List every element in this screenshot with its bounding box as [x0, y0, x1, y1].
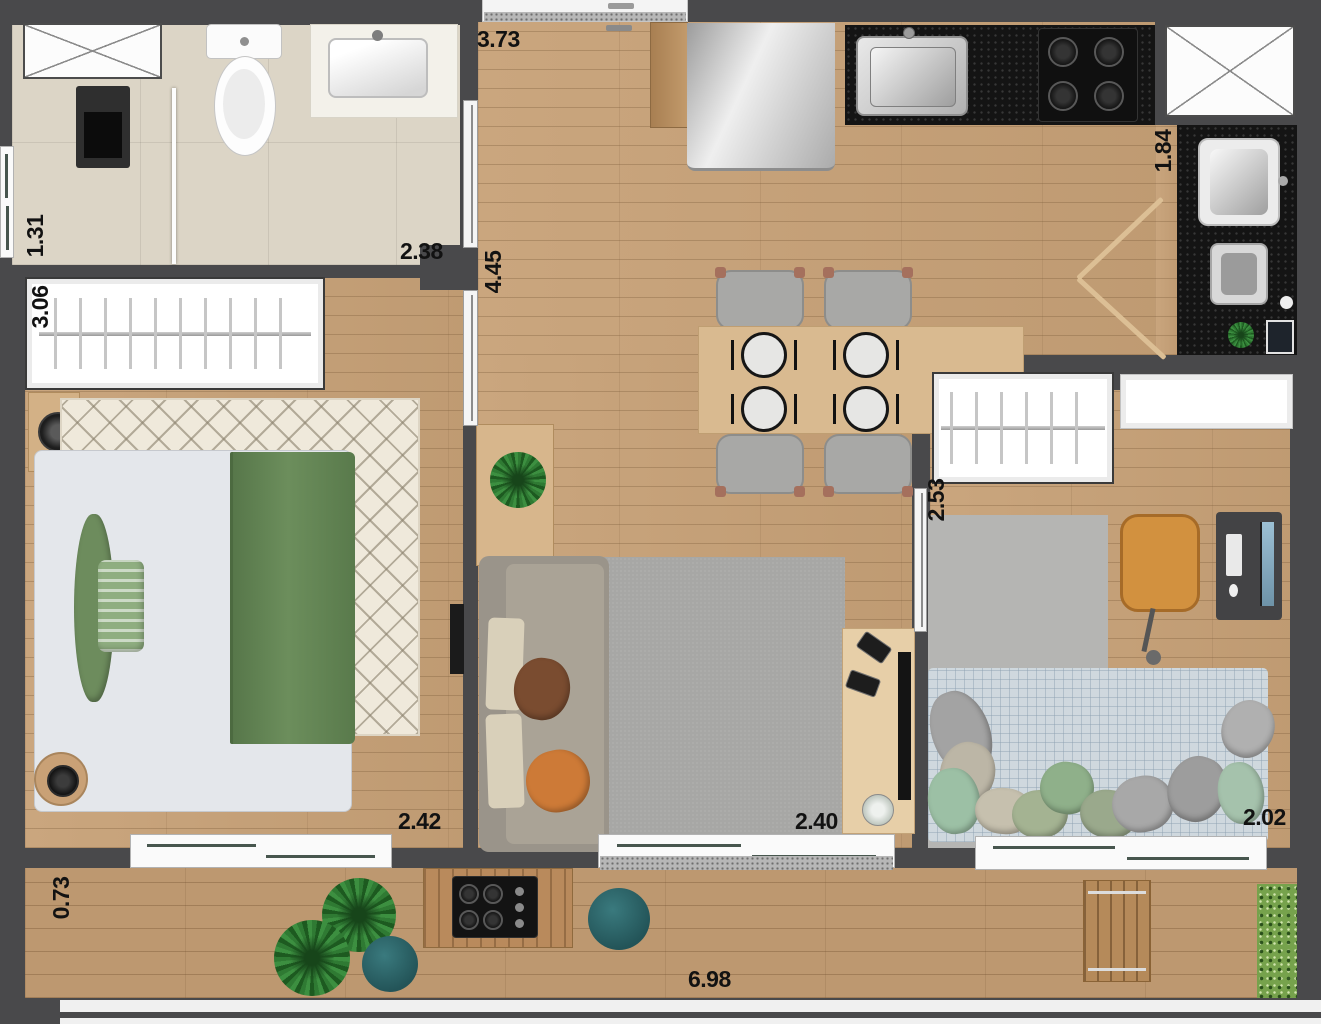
decor-tray-icon — [47, 765, 79, 797]
grill-burner-icon — [459, 884, 479, 904]
dining-chair-icon — [716, 270, 804, 330]
entry-doormat — [484, 12, 686, 21]
grill-burner-icon — [483, 910, 503, 930]
dining-chair-icon — [824, 434, 912, 494]
sink-basin — [870, 47, 956, 107]
laundry-basin — [1210, 149, 1268, 215]
dimension-label: 3.06 — [27, 281, 53, 333]
laundry-sink-icon — [1198, 138, 1280, 226]
balcony-bench — [1083, 880, 1151, 982]
bathroom-sliding-door — [463, 100, 478, 248]
balcony-railing — [60, 1018, 1321, 1024]
burner-icon — [1094, 81, 1124, 111]
entry-cabinet — [650, 22, 688, 128]
grill-knob-icon — [515, 887, 524, 896]
keyboard-icon — [1226, 534, 1242, 576]
balcony-railing — [60, 1000, 1321, 1012]
washing-bucket-icon — [1210, 243, 1268, 305]
dimension-label: 2.02 — [1243, 804, 1286, 830]
grill-knob-icon — [515, 919, 524, 928]
kitchen-faucet-icon — [903, 27, 915, 39]
door-handle-icon — [606, 25, 632, 31]
chair-wheel-icon — [1146, 650, 1161, 665]
grill-burner-icon — [483, 884, 503, 904]
burner-icon — [1048, 37, 1078, 67]
tv-icon — [898, 652, 911, 800]
teal-pouf-icon — [588, 888, 650, 950]
bedroom1-sliding-door — [463, 290, 478, 426]
burner-icon — [1048, 81, 1078, 111]
bathroom-sink-icon — [328, 38, 428, 98]
bedroom1-window — [130, 834, 392, 868]
living-plant-icon — [490, 452, 546, 508]
door-handle-icon — [608, 3, 634, 9]
place-setting-icon — [843, 332, 889, 378]
balcony-doormat — [600, 856, 893, 870]
dimension-label: 3.73 — [477, 26, 520, 52]
bucket-inner — [1221, 253, 1257, 295]
decor-vase-icon — [862, 794, 894, 826]
flush-button — [240, 37, 249, 46]
bathroom-faucet-icon — [372, 30, 383, 41]
bedroom1-wardrobe — [25, 277, 325, 390]
service-plant-icon — [1228, 322, 1254, 348]
fridge-icon — [687, 23, 835, 171]
shower-column-icon — [76, 86, 130, 168]
bathroom-window — [0, 146, 14, 258]
toilet-tank-icon — [206, 24, 282, 59]
hedge-planter — [1257, 884, 1297, 998]
teal-pouf-icon — [362, 936, 418, 992]
shower-tray — [84, 112, 122, 158]
dining-chair-icon — [824, 270, 912, 330]
burner-icon — [1094, 37, 1124, 67]
sofa-back-cushion — [485, 713, 524, 808]
utility-shaft-box-icon — [1165, 25, 1295, 117]
dimension-label: 0.73 — [48, 872, 74, 924]
living-rug — [603, 557, 845, 848]
bed1-blanket — [230, 452, 355, 744]
grill-knob-icon — [515, 903, 524, 912]
dimension-label: 1.84 — [1150, 125, 1176, 177]
shaft-box-icon — [23, 23, 162, 79]
kitchen-sink-icon — [856, 36, 968, 116]
stove-icon — [1038, 28, 1138, 122]
grill-burner-icon — [459, 910, 479, 930]
balcony-plant-icon — [274, 920, 350, 996]
shower-glass-partition — [172, 88, 176, 264]
drain-icon — [1280, 296, 1293, 309]
dimension-label: 2.40 — [795, 808, 838, 834]
place-setting-icon — [741, 332, 787, 378]
dimension-label: 1.31 — [22, 210, 48, 262]
place-setting-icon — [741, 386, 787, 432]
bed1-cushion-striped — [98, 560, 144, 652]
floor-plan: 3.73 2.38 4.45 1.31 3.06 1.84 2.53 2.42 … — [0, 0, 1321, 1024]
bedroom2-window — [975, 836, 1267, 870]
bedroom2-shelf — [1120, 374, 1293, 429]
place-setting-icon — [843, 386, 889, 432]
bedroom2-wardrobe — [932, 372, 1114, 484]
dimension-label: 2.42 — [398, 808, 441, 834]
bedroom1-tv-icon — [450, 604, 464, 674]
dining-chair-icon — [716, 434, 804, 494]
toilet-bowl-icon — [214, 56, 276, 156]
laundry-faucet-icon — [1278, 176, 1288, 186]
dimension-label: 2.38 — [400, 238, 443, 264]
mouse-icon — [1229, 584, 1238, 597]
office-chair-icon — [1120, 514, 1200, 612]
dimension-label: 4.45 — [480, 246, 506, 298]
doormat-service-icon — [1266, 320, 1294, 354]
dimension-label: 6.98 — [688, 966, 731, 992]
monitor-icon — [1260, 522, 1274, 606]
dimension-label: 2.53 — [923, 474, 949, 526]
toilet-seat — [223, 69, 265, 139]
bbq-grill-icon — [452, 876, 538, 938]
